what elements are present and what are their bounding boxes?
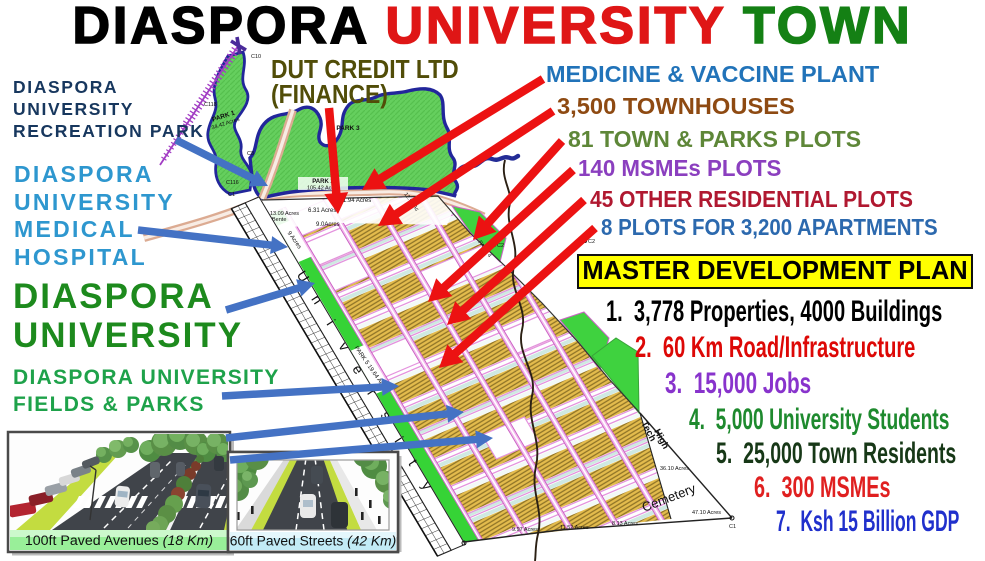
svg-text:C118: C118	[204, 102, 217, 108]
svg-text:11.52 Acres: 11.52 Acres	[560, 525, 589, 531]
svg-text:47.10 Acres: 47.10 Acres	[692, 510, 721, 516]
svg-text:PARK 3: PARK 3	[336, 125, 360, 132]
svg-text:C1: C1	[228, 192, 235, 198]
svg-text:60ft Paved Streets (42 Km): 60ft Paved Streets (42 Km)	[230, 534, 396, 549]
svg-text:100ft Paved Avenues (18 Km): 100ft Paved Avenues (18 Km)	[25, 533, 213, 549]
svg-text:C116: C116	[226, 180, 239, 186]
svg-text:C8: C8	[247, 151, 254, 157]
svg-text:8.13 Acres: 8.13 Acres	[612, 521, 638, 527]
svg-text:C1: C1	[729, 524, 736, 530]
svg-text:C2: C2	[588, 239, 595, 245]
svg-text:9.0Acres: 9.0Acres	[316, 222, 340, 228]
svg-text:9.97 Acres: 9.97 Acres	[512, 527, 538, 533]
svg-text:6.31 Acres: 6.31 Acres	[308, 208, 336, 214]
svg-text:36.10 Acres: 36.10 Acres	[660, 466, 689, 472]
